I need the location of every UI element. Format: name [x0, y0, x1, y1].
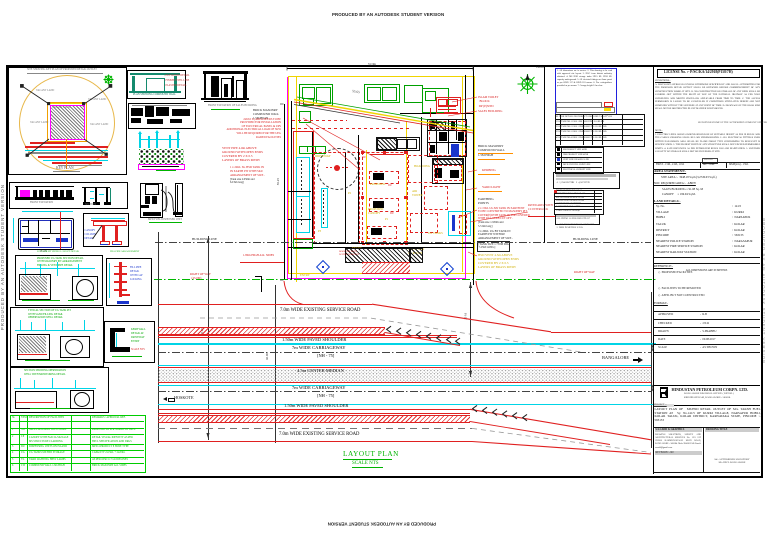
svg-text:55.65: 55.65 [352, 89, 361, 94]
